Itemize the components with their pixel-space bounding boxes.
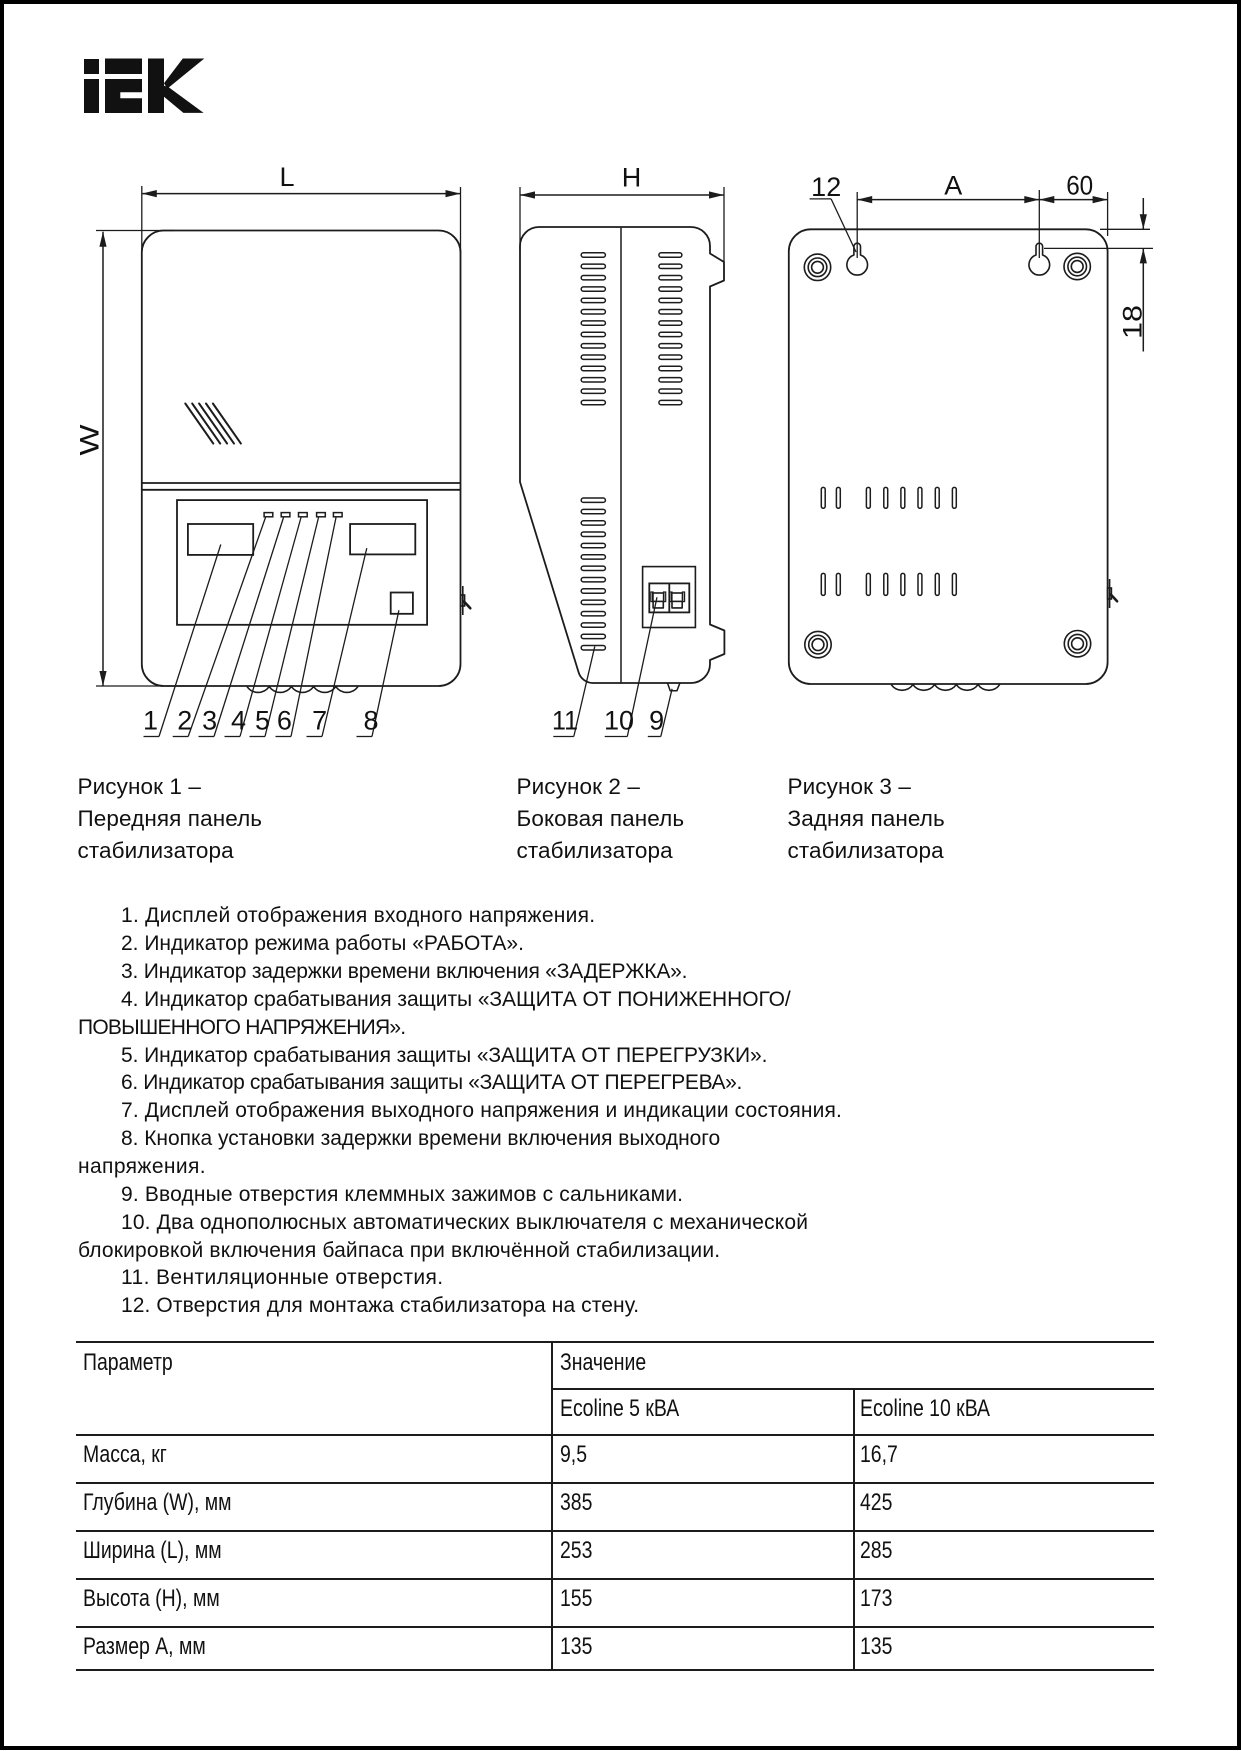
svg-text:18: 18 (1118, 305, 1148, 339)
svg-text:5: 5 (255, 706, 270, 736)
svg-text:10: 10 (604, 706, 634, 736)
svg-text:11: 11 (552, 706, 578, 736)
svg-text:2: 2 (177, 706, 192, 736)
svg-text:8: 8 (363, 706, 378, 736)
svg-text:6: 6 (277, 706, 292, 736)
svg-text:L: L (279, 162, 294, 192)
svg-text:A: A (944, 171, 962, 201)
svg-text:4: 4 (231, 706, 246, 736)
svg-text:12: 12 (811, 172, 841, 202)
svg-text:1: 1 (143, 706, 158, 736)
svg-text:H: H (622, 163, 642, 193)
svg-text:W: W (75, 424, 105, 456)
svg-text:9: 9 (649, 706, 664, 736)
svg-text:7: 7 (312, 706, 327, 736)
svg-text:60: 60 (1066, 171, 1093, 201)
svg-text:3: 3 (202, 706, 217, 736)
